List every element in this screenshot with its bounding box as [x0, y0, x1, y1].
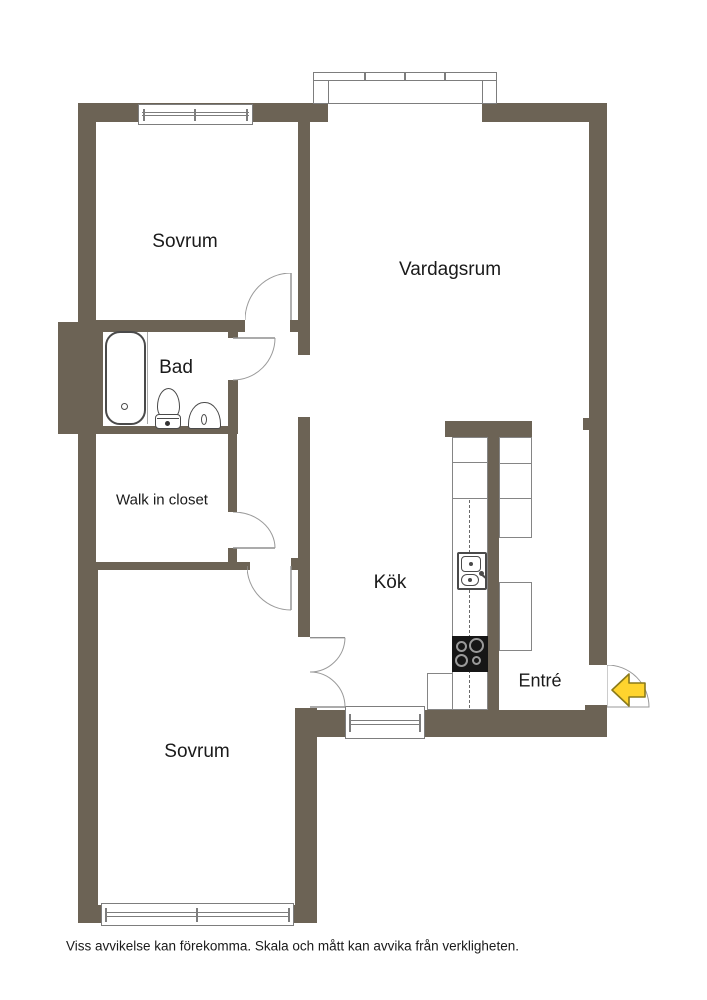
- bay-window-rail: [314, 80, 496, 81]
- bathtub: [105, 331, 146, 425]
- kitchen-sink-drain: [468, 578, 472, 582]
- kitchen-cabinet: [452, 462, 488, 499]
- wall-bathroom-block: [58, 322, 103, 434]
- bathtub-edge-line: [147, 332, 148, 424]
- bathroom-sink: [188, 402, 221, 429]
- disclaimer-text: Viss avvikelse kan förekomma. Skala och …: [66, 939, 519, 954]
- window-mullion: [349, 714, 351, 732]
- wall-left-mid: [78, 434, 96, 570]
- door-bedroom-bottom: [247, 566, 292, 611]
- wall-closet-bottom-stub: [291, 558, 298, 570]
- wall-kitchen-vertical: [487, 437, 499, 710]
- wall-mid-upper: [298, 122, 310, 355]
- window-rail: [349, 720, 421, 721]
- wall-kitchen-cap: [445, 421, 532, 437]
- window-mullion: [288, 908, 290, 922]
- window-mullion: [105, 908, 107, 922]
- stove-burner: [456, 641, 467, 652]
- bay-window-jamb: [328, 80, 329, 104]
- wall-right: [589, 103, 607, 665]
- door-kitchen-swing: [310, 637, 347, 708]
- sink-drain: [201, 414, 207, 425]
- stove-burner: [455, 654, 468, 667]
- window-mullion: [246, 109, 248, 121]
- toilet-tank-line: [157, 418, 179, 419]
- wall-closet-bottom: [96, 562, 250, 570]
- kitchen-counter-corner: [427, 673, 453, 710]
- hall-cabinet: [499, 463, 532, 499]
- entry-arrow-icon: [610, 671, 648, 709]
- bay-window-mullion: [404, 73, 406, 80]
- stove-burner: [469, 638, 484, 653]
- hall-cabinet: [499, 498, 532, 538]
- hall-cabinet: [499, 437, 532, 464]
- window-mullion: [419, 714, 421, 732]
- window-mullion: [194, 109, 196, 121]
- window-mullion: [143, 109, 145, 121]
- bay-window-living-room: [313, 72, 497, 104]
- floor-plan: Sovrum Vardagsrum Bad Walk in closet Kök…: [0, 0, 707, 1000]
- window-mullion: [196, 908, 198, 922]
- kitchen-counter-centerline: [469, 500, 470, 708]
- bay-window-mullion: [444, 73, 446, 80]
- room-label-entry: Entré: [518, 671, 561, 692]
- room-label-living-room: Vardagsrum: [399, 259, 501, 281]
- door-bedroom-top: [245, 273, 292, 321]
- hall-fridge: [499, 582, 532, 651]
- kitchen-counter: [452, 498, 488, 710]
- bay-window-mullion: [364, 73, 366, 80]
- kitchen-sink: [457, 552, 487, 590]
- room-label-kitchen: Kök: [374, 572, 407, 594]
- room-label-bedroom-top: Sovrum: [152, 231, 217, 253]
- wall-right-notch: [583, 418, 589, 430]
- toilet-tank: [155, 414, 181, 429]
- door-bathroom: [233, 337, 277, 381]
- room-label-bathroom: Bad: [159, 357, 193, 379]
- room-label-bedroom-bottom: Sovrum: [164, 741, 229, 763]
- window-bedroom-top: [138, 104, 253, 125]
- window-bedroom-bottom: [101, 903, 294, 926]
- bay-window-jamb: [482, 80, 483, 104]
- toilet-flush-button: [165, 421, 170, 426]
- wall-left-top: [78, 103, 96, 334]
- kitchen-cabinet: [452, 437, 488, 463]
- door-walk-in-closet: [233, 512, 276, 549]
- window-kitchen: [345, 706, 425, 739]
- wall-closet-right: [228, 434, 237, 512]
- stove: [452, 636, 488, 672]
- bathtub-drain: [121, 403, 128, 410]
- wall-left-bottom: [78, 570, 98, 923]
- wall-mid-lower: [298, 417, 310, 637]
- wall-bedroom1-bottom-stub: [290, 320, 298, 332]
- stove-burner: [472, 656, 481, 665]
- wall-bedroom2-right: [295, 708, 317, 923]
- room-label-walk-in-closet: Walk in closet: [116, 492, 208, 509]
- kitchen-sink-drain: [469, 562, 473, 566]
- window-rail: [349, 724, 421, 725]
